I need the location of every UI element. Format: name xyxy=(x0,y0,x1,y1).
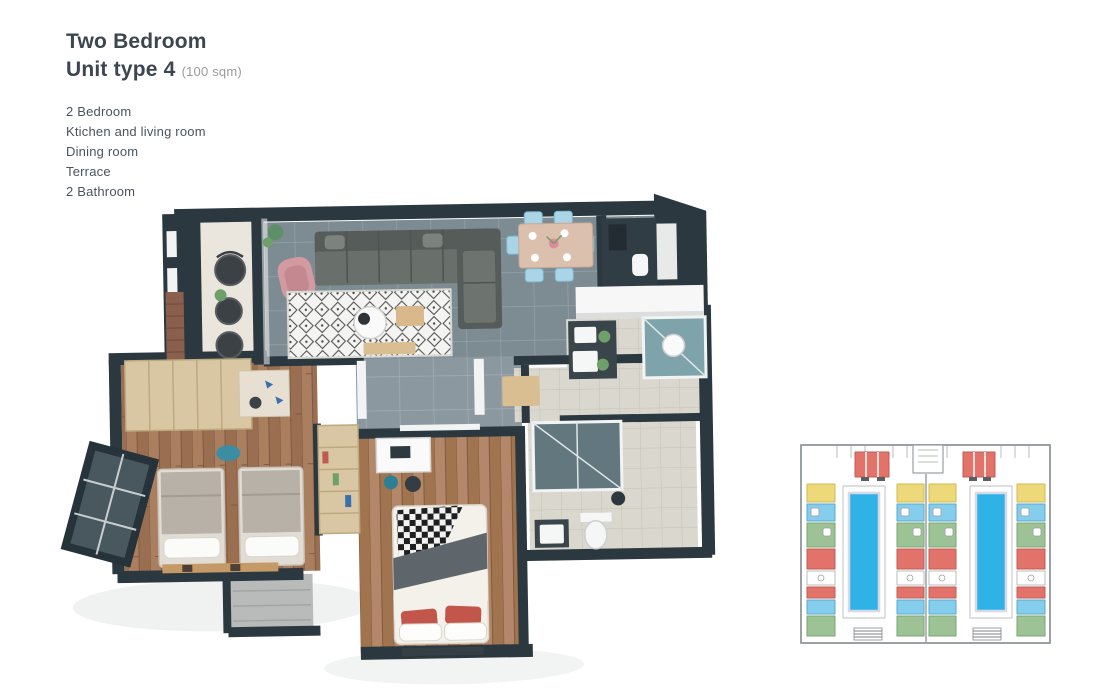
hall-console xyxy=(502,376,540,407)
media-bench xyxy=(363,342,415,355)
double-bed xyxy=(392,505,488,645)
pool xyxy=(976,493,1006,611)
page-title-line1: Two Bedroom xyxy=(66,28,242,56)
entry-nook xyxy=(229,574,313,633)
single-bed xyxy=(158,468,226,567)
unit-type-label: Unit type 4 xyxy=(66,58,176,81)
toilet-icon xyxy=(585,521,607,549)
area-note: (100 sqm) xyxy=(182,64,242,79)
building-key-plan xyxy=(797,438,1055,650)
red-pillow xyxy=(445,605,482,624)
brochure-page: { "page": { "background": "#ffffff" }, "… xyxy=(0,0,1120,700)
sink-icon xyxy=(573,351,598,372)
sink-icon xyxy=(574,327,596,343)
wardrobe xyxy=(125,359,252,431)
vanity-desk xyxy=(239,370,290,417)
laptop-icon xyxy=(390,446,410,458)
floor-plan-3d-render xyxy=(60,172,760,692)
pool xyxy=(849,493,879,611)
single-bed xyxy=(239,467,305,566)
tv-bench xyxy=(402,647,484,656)
feature-item: 2 Bedroom xyxy=(66,102,206,122)
title-block: Two Bedroom Unit type 4(100 sqm) xyxy=(66,28,242,86)
toilet-icon xyxy=(632,254,648,276)
sink-icon xyxy=(540,524,564,543)
brick-planter xyxy=(166,292,185,364)
feature-item: Dining room xyxy=(66,142,206,162)
feature-item: Ktichen and living room xyxy=(66,122,206,142)
entrance-core xyxy=(913,445,943,473)
page-title-line2: Unit type 4(100 sqm) xyxy=(66,56,242,86)
